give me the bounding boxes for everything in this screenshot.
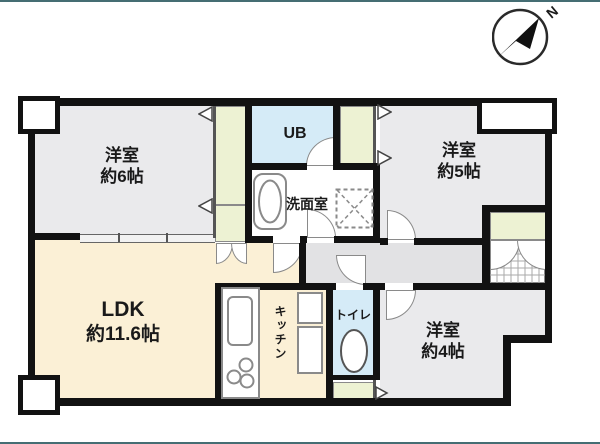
closet-opening-marker-icon [198,106,213,122]
wall-outer-left [28,98,35,406]
wall-outer-top [28,98,552,106]
bedroom5-closet [340,106,375,165]
floorplan-page: { "title": "マンション間取り図", "compass": { "la… [0,0,600,444]
wall-outer-bottom [28,398,510,406]
closet-opening-marker-icon [198,198,213,214]
bedroom6-closet-divider [215,204,245,206]
wall-notch-vertical [503,335,511,406]
refrigerator-space [297,326,323,374]
partition-tick-1 [118,233,120,242]
wall-toilet-closet-divider [333,375,373,380]
pillar-top-left [18,96,60,134]
wall-outer-right [545,98,552,343]
bedroom5-size: 約5帖 [437,161,480,182]
washing-machine-space [335,188,374,229]
kitchen-label: キッチン [272,305,289,375]
wall-ub-right [333,98,340,170]
toilet-label: トイレ [334,306,372,323]
pillar-bottom-left [18,375,60,415]
wall-ub-bottom-left [245,163,307,170]
bedroom5-closet-front [373,106,376,163]
kitchen-sink [228,297,252,345]
bedroom4-label: 洋室 約4帖 [383,320,503,363]
ldk-size: 約11.6帖 [86,323,160,347]
pillar-notch-top-right [477,98,557,134]
kitchen-counter [221,287,261,399]
toilet-fixture [339,328,369,374]
entrance-shoe-cabinet [490,212,547,240]
wall-toilet-left [326,283,333,398]
bedroom6-size: 約6帖 [100,166,143,187]
wall-bedroom6-ldk [28,233,80,240]
wall-entrance-left [482,205,490,283]
stove-burner [228,371,241,384]
bedroom5-label: 洋室 約5帖 [399,140,519,183]
bedroom6-closet-front [213,106,216,238]
hallway-floor [306,243,482,283]
bedroom6-closet [215,106,247,242]
bedroom6-ldk-sliding-partition [80,234,215,243]
top-edge-line [0,0,600,2]
wall-toilet-right [373,283,380,380]
wall-ub-bottom-right [333,163,380,170]
stove-burner [241,375,254,388]
stove-burner [240,359,253,372]
wall-washroom-bottom-stub [300,236,307,243]
kitchen-cabinet-space [297,292,323,324]
bedroom5-name: 洋室 [442,140,476,161]
unit-bath-label: UB [265,125,325,143]
closet-opening-marker-icon [377,150,392,166]
wall-hallway-bottom-right [413,283,552,290]
closet-opening-marker-icon [375,386,389,400]
wall-closet6-right [245,98,252,243]
ldk-name: LDK [101,297,144,323]
wall-hallway-bottom-mid [363,283,385,290]
ldk-label: LDK 約11.6帖 [63,297,183,347]
bedroom6-name: 洋室 [105,145,139,166]
closet-opening-marker-icon [377,104,392,120]
wall-washroom-bottom-right [334,236,380,243]
washroom-label: 洗面室 [277,194,337,214]
wall-washroom-bedroom5 [373,163,380,243]
wall-bedroom5-bottom-left [380,238,388,245]
bedroom4-name: 洋室 [426,320,460,341]
bedroom6-label: 洋室 約6帖 [62,145,182,188]
bedroom4-size: 約4帖 [421,341,464,362]
wall-shoebox-top [482,205,552,212]
wall-washroom-bottom-left [245,236,273,243]
wall-bedroom5-bottom-right [414,238,482,245]
partition-tick-2 [166,233,168,242]
